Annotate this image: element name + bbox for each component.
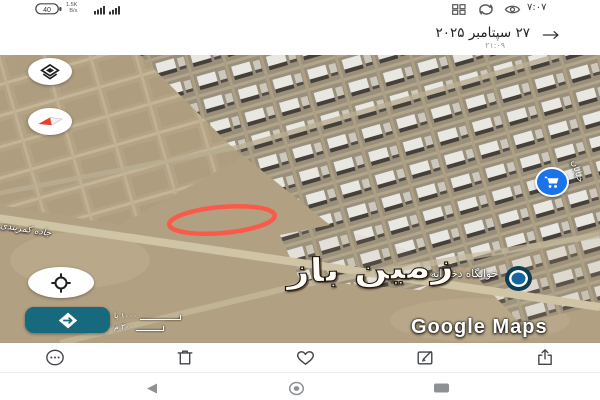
dormitory-poi-marker [505, 266, 532, 291]
photo-date-title: ۲۷ سپتامبر ۲۰۲۵ [436, 25, 530, 41]
shopping-cart-poi-marker [535, 167, 569, 197]
share-button[interactable] [527, 344, 563, 370]
scale-feet-line [140, 315, 181, 320]
edit-icon [414, 348, 436, 367]
layers-icon [40, 63, 60, 81]
nav-recents-button[interactable] [426, 379, 456, 397]
android-navbar [0, 372, 600, 400]
eye-comfort-icon [504, 4, 521, 15]
nav-back-button[interactable] [137, 379, 167, 397]
signal-bars-icon [94, 4, 122, 15]
share-icon [534, 348, 556, 367]
map-screenshot-photo[interactable]: جاده کمربندی خیابان خوابگاه دخترانه زمین… [0, 55, 600, 343]
photo-time-subtitle: ۲۱:۰۹ [485, 41, 505, 50]
my-location-button [28, 267, 94, 298]
more-options-button[interactable] [37, 344, 73, 370]
my-location-icon [49, 272, 73, 294]
edit-button[interactable] [407, 344, 443, 370]
scale-feet-label: ۱۰۰۰ پا [114, 311, 137, 320]
shopping-cart-icon [544, 176, 560, 189]
google-maps-attribution: Google Maps [411, 316, 548, 339]
status-time: ۷:۰۷ [527, 2, 546, 13]
delete-button[interactable] [167, 344, 203, 370]
back-arrow-icon [542, 28, 560, 42]
compass-needle-icon [37, 115, 63, 128]
recents-icon [433, 382, 450, 394]
favorite-icon [294, 348, 317, 367]
map-app-fab-button [25, 307, 110, 333]
network-speed-unit: B/s [66, 9, 77, 15]
zamin-baz-watermark: زمین باز [286, 247, 454, 291]
scale-meters-label: ۲۰۰ م [114, 322, 133, 331]
home-icon [288, 381, 305, 396]
scale-meters-line [136, 326, 164, 331]
phone-screen: 40 1.5K B/s ۷:۰۷ [0, 0, 600, 400]
status-bar: 40 1.5K B/s ۷:۰۷ [0, 0, 600, 18]
favorite-button[interactable] [287, 344, 323, 370]
more-icon [44, 348, 66, 367]
battery-percent-text: 40 [43, 7, 51, 14]
back-icon [145, 382, 159, 395]
diamond-arrow-app-icon [56, 311, 80, 330]
compass-button [28, 108, 72, 135]
network-speed: 1.5K B/s [66, 3, 77, 14]
gallery-header: ۲۷ سپتامبر ۲۰۲۵ ۲۱:۰۹ [0, 18, 600, 55]
battery-icon: 40 [35, 3, 62, 15]
satellite-map-imagery [0, 55, 600, 343]
gallery-toolbar [0, 343, 600, 372]
sync-icon [477, 3, 495, 16]
grid-icon [452, 4, 466, 15]
delete-icon [174, 348, 196, 367]
back-arrow-button[interactable] [536, 26, 566, 44]
layers-button [28, 58, 72, 85]
map-scale-bar: ۱۰۰۰ پا ۲۰۰ م [114, 309, 181, 331]
nav-home-button[interactable] [281, 379, 311, 397]
